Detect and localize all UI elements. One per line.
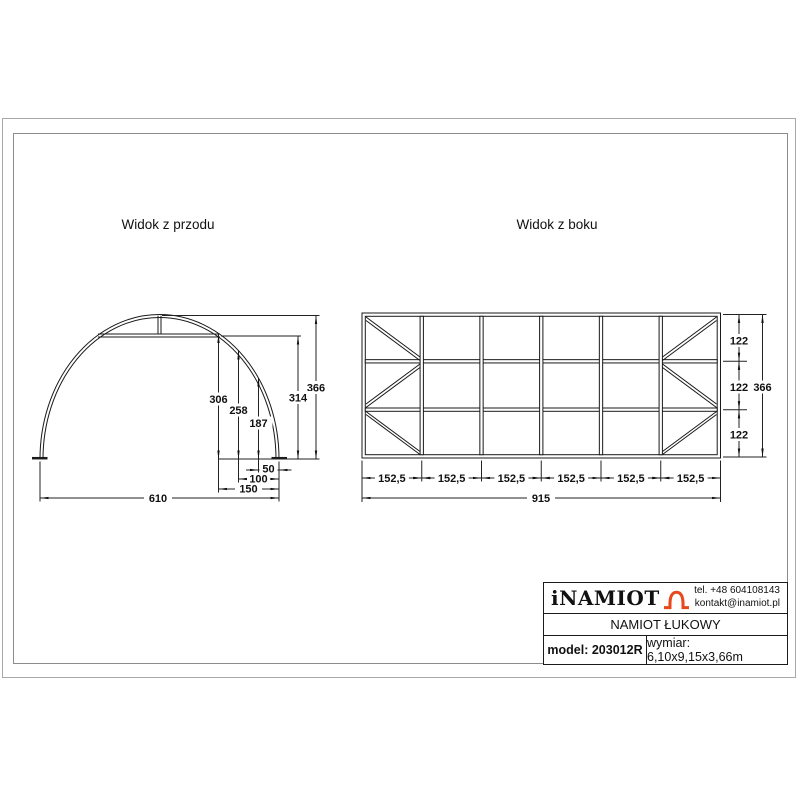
front-dim-h-at-100: 258 bbox=[229, 405, 247, 417]
front-dim-base-width: 610 bbox=[149, 493, 167, 505]
tent-logo-icon bbox=[662, 586, 691, 611]
side-dim-bay-3: 152,5 bbox=[498, 473, 526, 485]
side-dim-total-height: 366 bbox=[753, 382, 771, 394]
product-name: NAMIOT ŁUKOWY bbox=[544, 614, 787, 636]
brand-logo-text: iNAMIOT bbox=[551, 588, 660, 608]
model-number: model: 203012R bbox=[544, 636, 647, 664]
side-dim-row-1: 122 bbox=[730, 336, 748, 348]
side-dim-bay-6: 152,5 bbox=[677, 473, 705, 485]
overall-dimensions: wymiar: 6,10x9,15x3,66m bbox=[647, 636, 787, 664]
title-block: iNAMIOT tel. +48 604108143 kontakt@inami… bbox=[543, 582, 788, 665]
side-dim-total-length: 915 bbox=[532, 493, 550, 505]
side-view-title: Widok z boku bbox=[516, 217, 597, 232]
front-dim-chord-height: 314 bbox=[289, 393, 308, 405]
front-view-drawing: Widok z przodu bbox=[32, 217, 330, 505]
side-dim-bay-5: 152,5 bbox=[617, 473, 645, 485]
front-dim-offset-150: 150 bbox=[239, 484, 257, 496]
front-dimension-labels: 366 314 306 258 187 50 100 150 610 bbox=[144, 381, 330, 505]
side-dim-bay-2: 152,5 bbox=[438, 473, 466, 485]
front-dim-h-at-50: 187 bbox=[249, 418, 267, 430]
front-extension-lines bbox=[40, 316, 320, 502]
side-dim-row-3: 122 bbox=[730, 430, 748, 442]
side-dim-bay-4: 152,5 bbox=[557, 473, 585, 485]
contact-info: tel. +48 604108143 kontakt@inamiot.pl bbox=[694, 585, 787, 610]
side-frame-grid bbox=[362, 313, 721, 458]
phone-number: tel. +48 604108143 bbox=[694, 585, 780, 596]
title-block-bottom-row: model: 203012R wymiar: 6,10x9,15x3,66m bbox=[544, 636, 787, 664]
technical-drawing: Widok z przodu bbox=[0, 0, 800, 800]
side-view-drawing: Widok z boku bbox=[362, 217, 776, 505]
email-address: kontakt@inamiot.pl bbox=[695, 598, 780, 609]
front-view-title: Widok z przodu bbox=[121, 217, 214, 232]
side-dim-row-2: 122 bbox=[730, 382, 748, 394]
side-dim-bay-1: 152,5 bbox=[378, 473, 406, 485]
title-block-logo-row: iNAMIOT tel. +48 604108143 kontakt@inami… bbox=[544, 583, 787, 614]
